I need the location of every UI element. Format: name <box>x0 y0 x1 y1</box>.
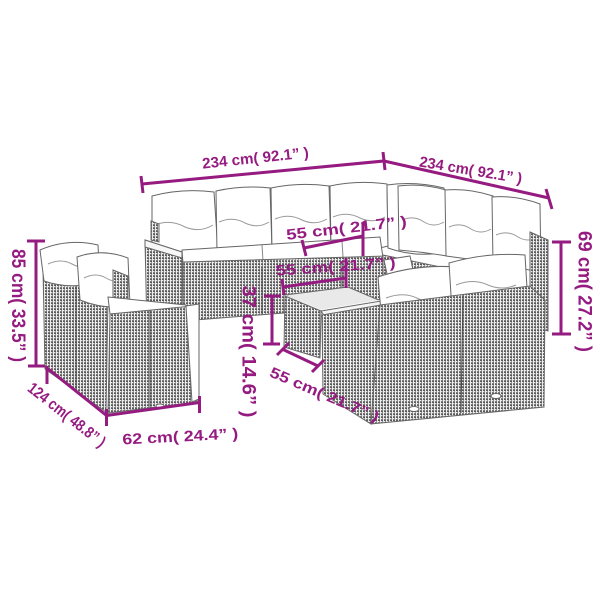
svg-text:37 cm( 14.6” ): 37 cm( 14.6” ) <box>238 286 259 418</box>
svg-text:69 cm( 27.2” ): 69 cm( 27.2” ) <box>574 231 595 352</box>
svg-text:85 cm( 33.5” ): 85 cm( 33.5” ) <box>7 249 28 362</box>
